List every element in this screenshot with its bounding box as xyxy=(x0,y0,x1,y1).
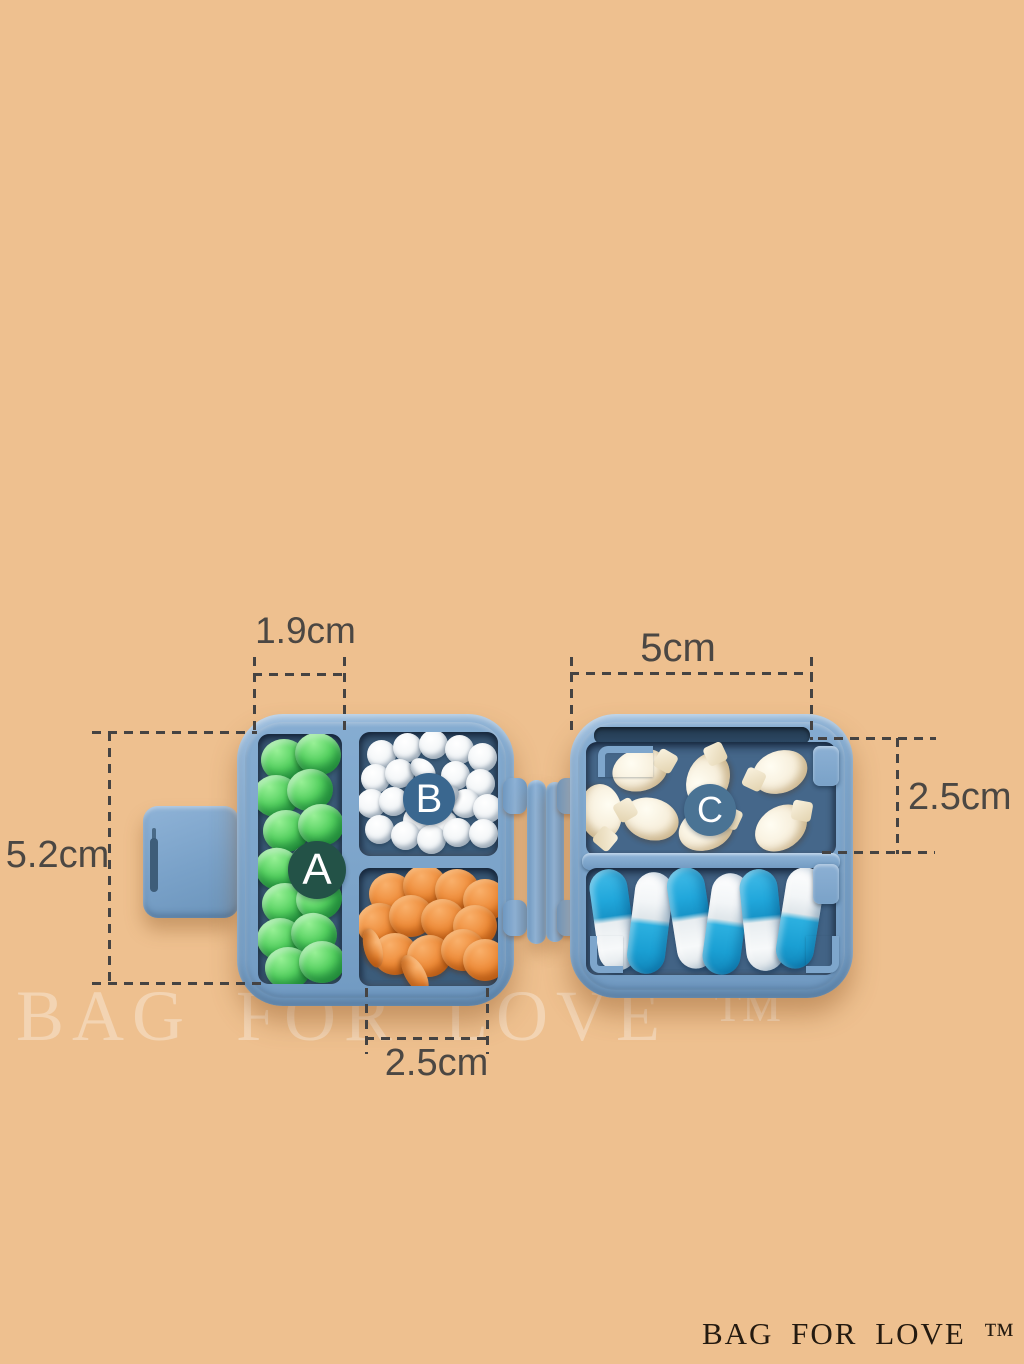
fish-pill xyxy=(746,795,816,856)
pill-box-right-half xyxy=(570,714,853,998)
brand-logo: BAG FOR LOVE ™ xyxy=(702,1316,1016,1352)
white-pill xyxy=(468,743,497,772)
latch-tab xyxy=(143,806,239,918)
white-pill xyxy=(391,821,420,850)
dim-25r-tick-bottom xyxy=(822,851,935,854)
corner-wall-top-left xyxy=(598,746,653,777)
latch-recess-bottom xyxy=(813,864,839,904)
dim-label-25cm-bottom: 2.5cm xyxy=(374,1044,499,1082)
dim-5-tick-right xyxy=(810,657,813,740)
dim-19-line xyxy=(253,673,346,676)
left-hinge-knuckle-top xyxy=(503,778,527,814)
green-pill xyxy=(298,804,342,846)
orange-pill xyxy=(463,939,498,981)
corner-wall-bottom-left xyxy=(590,936,623,973)
dim-25b-line xyxy=(365,1037,489,1040)
badge-a-letter: A xyxy=(302,845,331,895)
dim-5-tick-left xyxy=(570,657,573,737)
compartment-orange xyxy=(359,868,498,986)
corner-wall-bottom-right xyxy=(806,936,839,973)
white-pill xyxy=(469,819,498,848)
white-pill xyxy=(417,825,446,854)
dim-label-5cm: 5cm xyxy=(628,628,728,668)
badge-c-letter: C xyxy=(697,789,723,831)
pill-box-left-half xyxy=(237,714,514,1006)
left-hinge-knuckle-bottom xyxy=(503,900,527,936)
badge-b-letter: B xyxy=(416,777,443,822)
dim-label-52cm: 5.2cm xyxy=(0,836,115,874)
compartment-badge-c: C xyxy=(684,784,736,836)
dim-19-tick-left xyxy=(253,657,256,735)
compartment-capsules xyxy=(586,868,836,975)
compartment-badge-a: A xyxy=(288,841,346,899)
hinge-strip-left xyxy=(527,780,546,944)
compartment-badge-b: B xyxy=(403,773,455,825)
white-pill xyxy=(365,815,394,844)
dim-52-tick-top xyxy=(92,731,257,734)
latch-recess-top xyxy=(813,746,839,786)
latch-slot xyxy=(150,838,158,892)
dim-25b-tick-left xyxy=(365,988,368,1054)
green-pill xyxy=(299,941,342,983)
dim-5-line xyxy=(570,672,813,675)
dim-19-tick-right xyxy=(343,657,346,735)
fish-pill xyxy=(619,791,684,846)
dim-label-25cm-right: 2.5cm xyxy=(908,778,1024,816)
fish-pill xyxy=(747,743,814,802)
white-pill xyxy=(419,732,448,759)
product-photo: BAG FOR LOVE ™ A B C 1.9 xyxy=(0,0,1024,1364)
white-pill xyxy=(443,818,472,847)
dim-label-19cm: 1.9cm xyxy=(248,612,363,649)
dim-25r-line xyxy=(896,738,899,854)
dim-52-tick-bottom xyxy=(92,982,264,985)
dim-25r-tick-top xyxy=(818,737,936,740)
